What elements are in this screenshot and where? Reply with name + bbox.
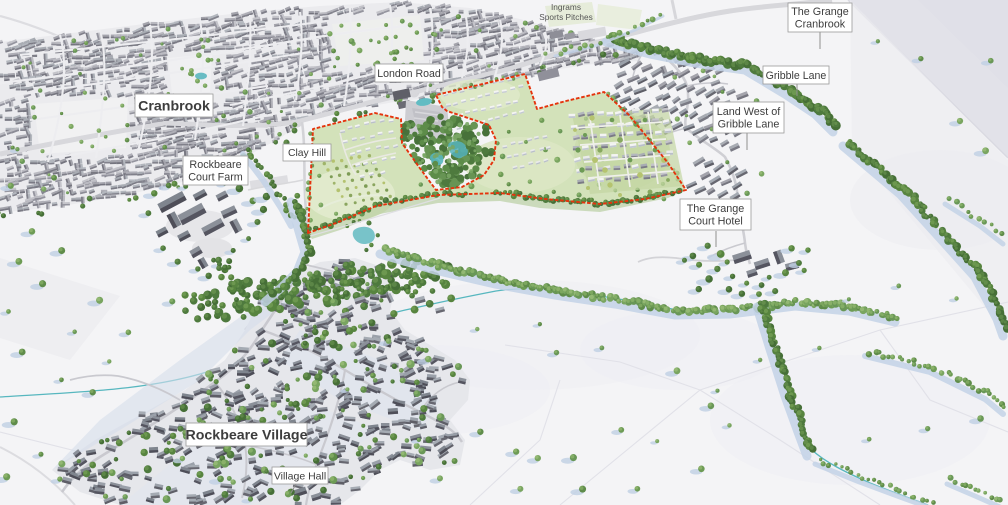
svg-text:Gribble Lane: Gribble Lane bbox=[766, 70, 827, 82]
svg-text:Village Hall: Village Hall bbox=[274, 470, 326, 482]
svg-text:Cranbrook: Cranbrook bbox=[138, 99, 210, 115]
svg-text:Rockbeare: Rockbeare bbox=[189, 159, 241, 171]
svg-text:Gribble Lane: Gribble Lane bbox=[718, 119, 780, 131]
svg-text:Ingrams: Ingrams bbox=[551, 2, 581, 12]
svg-text:The Grange: The Grange bbox=[687, 203, 745, 215]
svg-text:Court Farm: Court Farm bbox=[188, 172, 243, 184]
svg-text:Clay Hill: Clay Hill bbox=[288, 148, 326, 159]
svg-text:Rockbeare Village: Rockbeare Village bbox=[186, 428, 308, 444]
svg-text:Cranbrook: Cranbrook bbox=[795, 19, 846, 31]
svg-text:London Road: London Road bbox=[377, 68, 441, 80]
svg-text:The Grange: The Grange bbox=[791, 6, 849, 18]
svg-text:Sports Pitches: Sports Pitches bbox=[539, 12, 593, 22]
svg-text:Land West of: Land West of bbox=[717, 106, 781, 118]
svg-text:Court Hotel: Court Hotel bbox=[688, 216, 743, 228]
